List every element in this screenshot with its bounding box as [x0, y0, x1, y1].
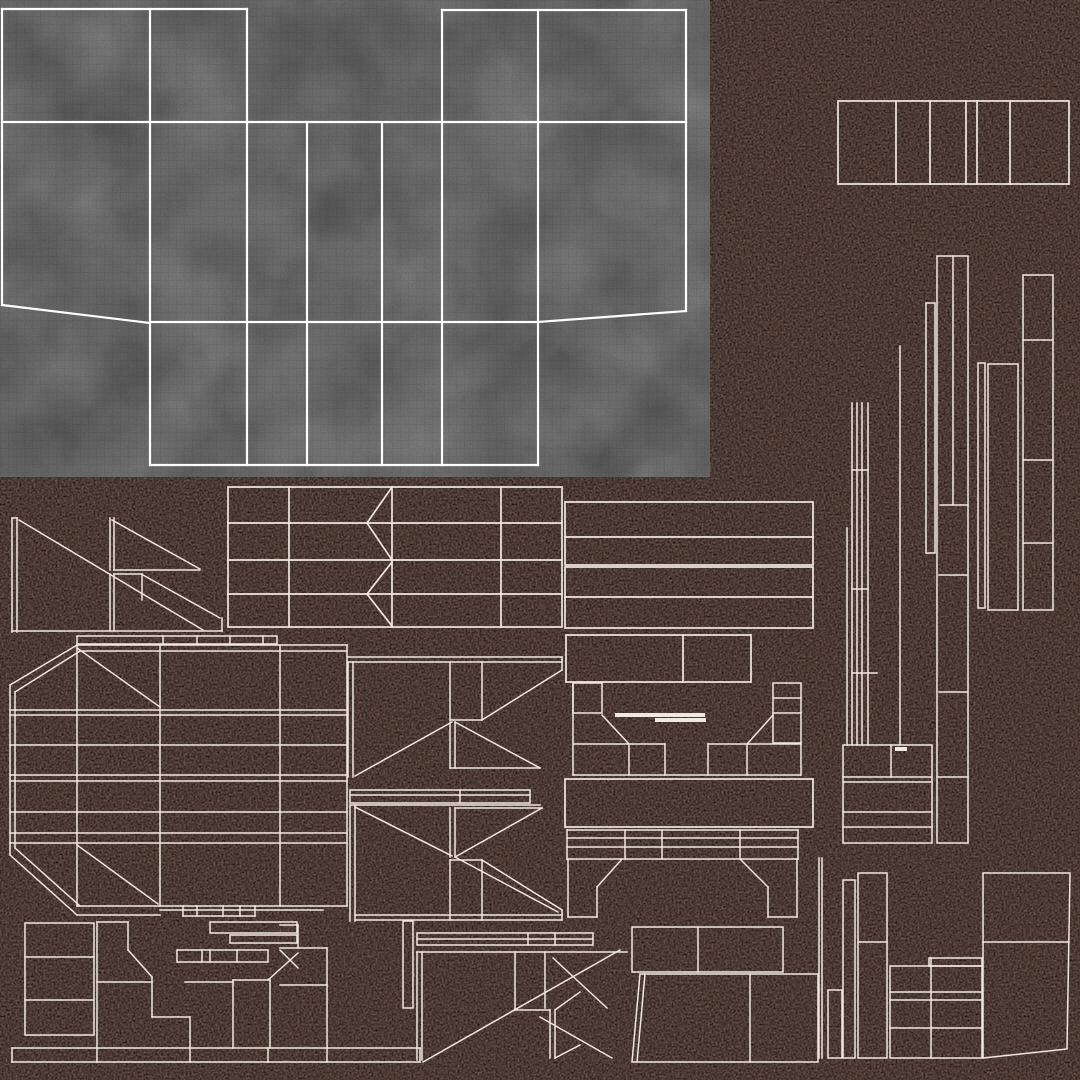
- uv-edge: [895, 747, 907, 751]
- gray-region-grid: [0, 0, 710, 477]
- uv-texture-atlas: [0, 0, 1080, 1080]
- uv-edge: [615, 713, 705, 717]
- gray-baked-region: [0, 0, 710, 477]
- uv-edge: [655, 718, 706, 722]
- uv-map-canvas: [0, 0, 1080, 1080]
